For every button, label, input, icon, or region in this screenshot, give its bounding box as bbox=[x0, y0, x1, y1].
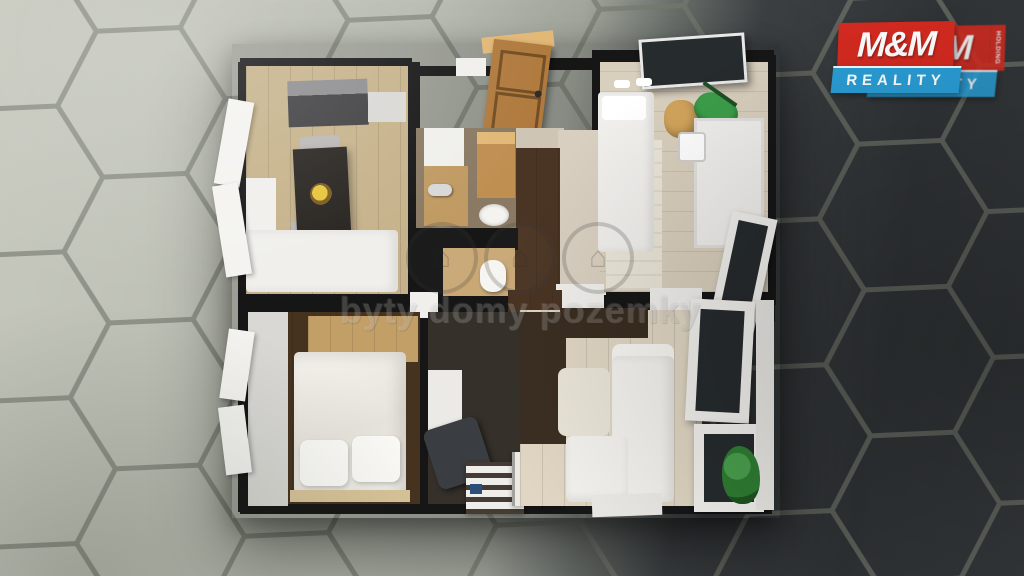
balcony-door-frame-upper bbox=[685, 298, 755, 423]
listing-render: ⌂ ⌂ ⌂ byty domy pozemky M&M HOLDING REAL… bbox=[0, 0, 1024, 576]
bed-frame-foot bbox=[290, 490, 410, 502]
wall-bathroom-wc bbox=[410, 228, 518, 250]
media-shelf-dark bbox=[560, 308, 648, 338]
livingroom-rug bbox=[558, 368, 610, 436]
faucet bbox=[428, 184, 452, 196]
hallway-wood-floor bbox=[514, 148, 560, 304]
table-flowers bbox=[310, 183, 332, 205]
balcony-door-glass-upper bbox=[695, 309, 744, 413]
kids-chair bbox=[678, 132, 706, 162]
tv-screen bbox=[638, 32, 747, 89]
logo-red-block: M&M bbox=[837, 21, 955, 69]
bedroom-left-wall-face bbox=[248, 312, 288, 506]
logo-banner-text: REALITY bbox=[845, 72, 946, 89]
l-sofa-chaise bbox=[566, 436, 628, 502]
doorway-threshold bbox=[592, 493, 663, 517]
pillow-right bbox=[352, 436, 400, 482]
bathroom-cabinet bbox=[424, 128, 464, 168]
living-sofa bbox=[246, 230, 398, 292]
logo-holding-text: HOLDING bbox=[989, 25, 1006, 71]
logo-blue-banner: REALITY bbox=[831, 66, 962, 93]
wall-white-entry bbox=[456, 58, 486, 76]
bathroom-vanity bbox=[424, 166, 468, 226]
pillow-left bbox=[300, 440, 348, 486]
ceiling-light-2 bbox=[636, 78, 652, 86]
toilet bbox=[480, 260, 506, 292]
wardrobe bbox=[477, 144, 515, 198]
agency-logo-main: M&M REALITY bbox=[828, 16, 988, 96]
entry-door bbox=[482, 39, 551, 141]
blue-book bbox=[470, 484, 482, 494]
kitchen-cabinet bbox=[287, 79, 369, 128]
washbasin bbox=[479, 204, 509, 226]
logo-top-text: M&M bbox=[856, 24, 935, 65]
ceiling-light-1 bbox=[614, 80, 630, 88]
agency-logo: M&M HOLDING REALITY M&M REALITY bbox=[828, 16, 1018, 102]
kids-pillow bbox=[602, 96, 646, 120]
door-panel-top bbox=[496, 50, 547, 95]
kitchen-counter bbox=[368, 92, 406, 122]
